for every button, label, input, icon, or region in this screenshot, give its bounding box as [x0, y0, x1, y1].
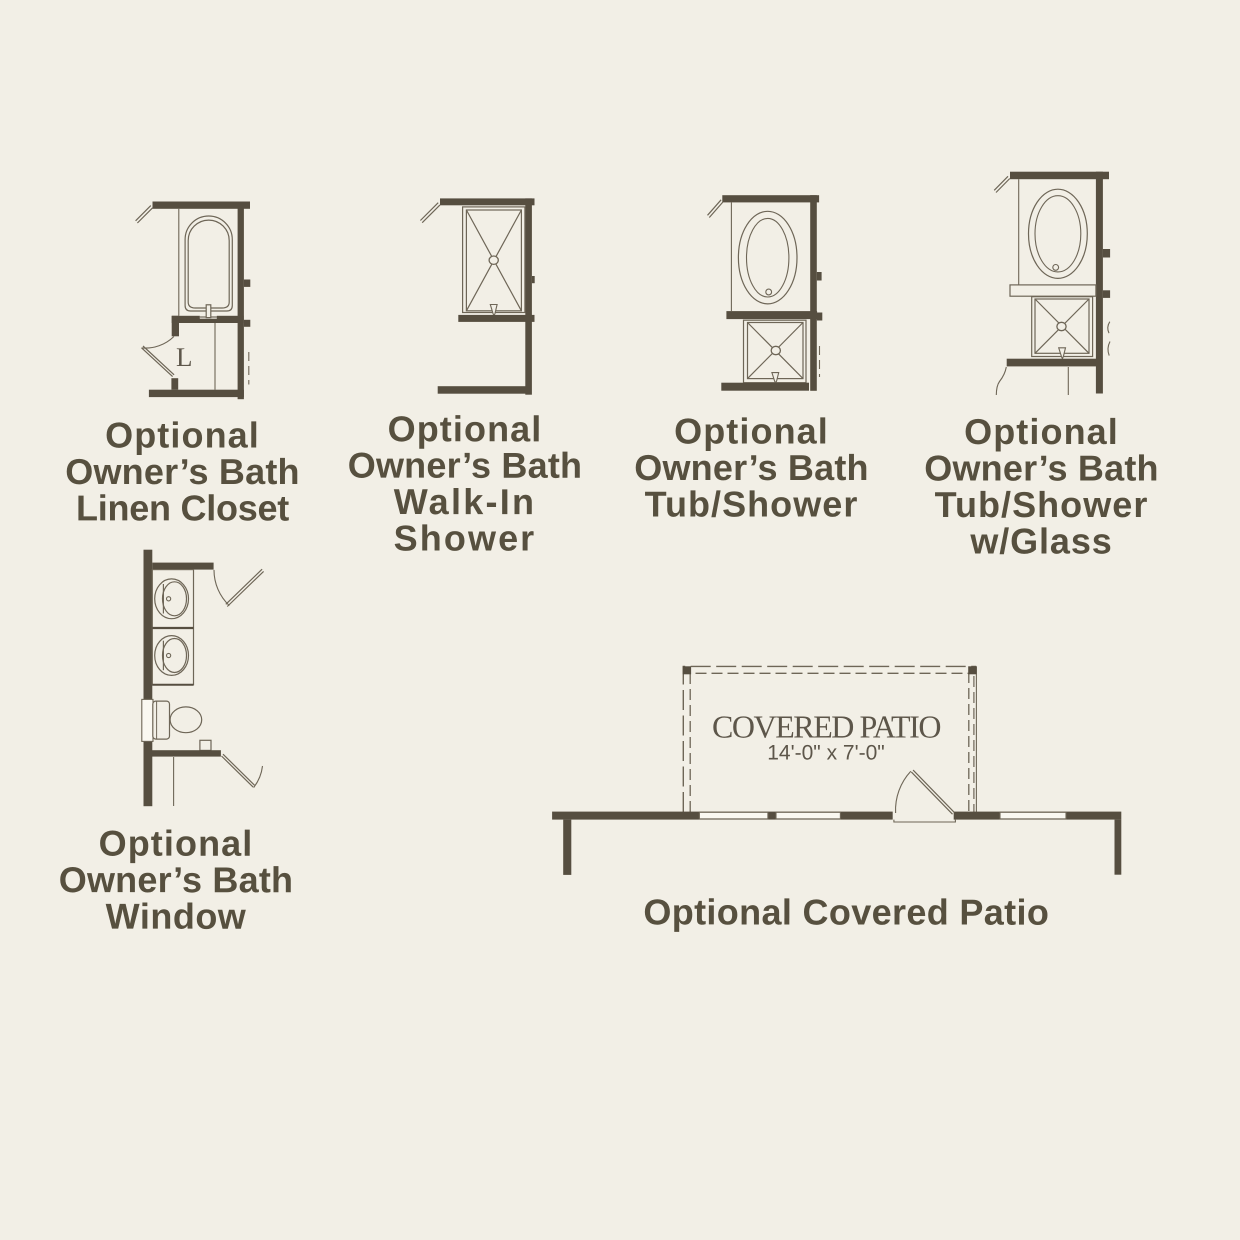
svg-text:Optional: Optional	[99, 823, 254, 864]
svg-text:Owner’s Bath: Owner’s Bath	[348, 445, 582, 486]
svg-text:Owner’s Bath: Owner’s Bath	[634, 447, 868, 488]
svg-text:Owner’s Bath: Owner’s Bath	[59, 859, 293, 900]
svg-text:Optional: Optional	[964, 411, 1119, 452]
svg-text:L: L	[176, 342, 193, 372]
svg-text:Optional: Optional	[388, 408, 543, 449]
svg-text:Linen Closet: Linen Closet	[76, 487, 289, 528]
svg-text:Tub/Shower: Tub/Shower	[935, 484, 1149, 525]
svg-text:Optional Covered Patio: Optional Covered Patio	[643, 891, 1049, 932]
svg-text:w/Glass: w/Glass	[969, 520, 1112, 561]
svg-text:Optional: Optional	[105, 414, 260, 455]
svg-text:Optional: Optional	[674, 410, 829, 451]
svg-text:Tub/Shower: Tub/Shower	[645, 483, 859, 524]
svg-text:Owner’s Bath: Owner’s Bath	[924, 447, 1158, 488]
svg-text:COVERED PATIO: COVERED PATIO	[712, 708, 940, 744]
svg-text:Window: Window	[106, 896, 247, 937]
svg-text:Owner’s Bath: Owner’s Bath	[65, 451, 299, 492]
svg-text:14'-0" x 7'-0": 14'-0" x 7'-0"	[767, 741, 884, 764]
svg-text:Shower: Shower	[394, 517, 537, 558]
svg-text:Walk-In: Walk-In	[394, 481, 536, 522]
